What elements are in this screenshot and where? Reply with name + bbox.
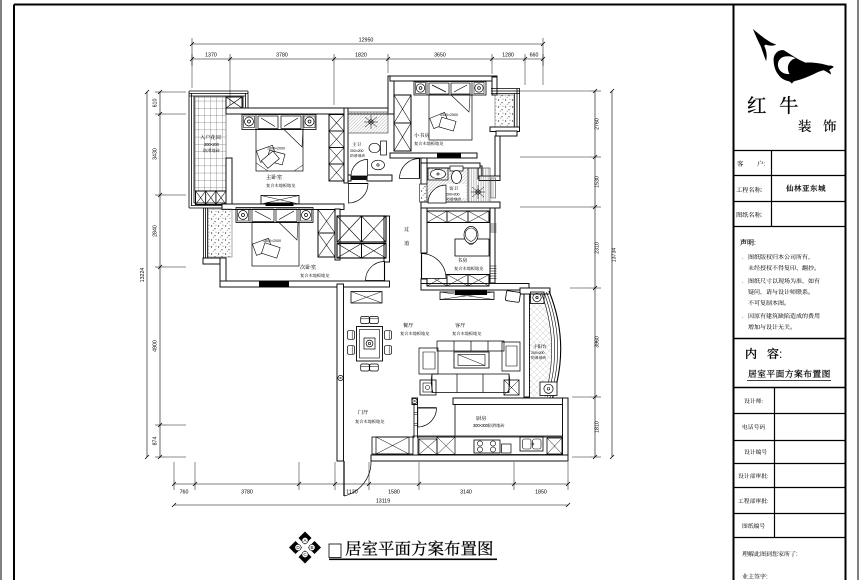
svg-text:3140: 3140 <box>460 490 472 496</box>
svg-text::: : <box>764 161 766 168</box>
svg-text:3430: 3430 <box>153 148 159 160</box>
svg-text:B: B <box>310 545 313 550</box>
svg-text:1580: 1580 <box>388 490 400 496</box>
svg-text:0: 0 <box>542 351 544 355</box>
svg-text:2760: 2760 <box>595 118 601 130</box>
svg-text:3650: 3650 <box>434 53 446 59</box>
svg-text:0: 0 <box>457 193 459 197</box>
svg-text::: : <box>761 212 763 219</box>
svg-text:660: 660 <box>530 53 539 59</box>
svg-text::: : <box>754 240 756 247</box>
svg-text:610: 610 <box>153 99 159 108</box>
svg-text:1850: 1850 <box>535 490 547 496</box>
svg-text:.: . <box>742 255 743 261</box>
svg-text:3780: 3780 <box>241 490 253 496</box>
svg-text:13224: 13224 <box>140 268 146 283</box>
svg-text:2310: 2310 <box>595 242 601 254</box>
svg-text:12950: 12950 <box>359 38 374 44</box>
svg-text:0: 0 <box>361 149 363 153</box>
svg-text:1800×2000: 1800×2000 <box>263 239 281 243</box>
svg-text:5300×2500: 5300×2500 <box>440 113 458 117</box>
svg-text:13119: 13119 <box>376 499 390 505</box>
svg-text:1800×2000: 1800×2000 <box>267 147 285 151</box>
svg-text:874: 874 <box>153 437 159 446</box>
svg-text:4900: 4900 <box>153 340 159 352</box>
svg-text:1280: 1280 <box>502 53 514 59</box>
svg-text:1820: 1820 <box>355 53 367 59</box>
svg-text:3780: 3780 <box>276 53 288 59</box>
svg-text::: : <box>761 187 763 194</box>
svg-text:1810: 1810 <box>595 421 601 433</box>
svg-text:760: 760 <box>180 490 189 496</box>
svg-text:1530: 1530 <box>595 176 601 188</box>
svg-text:.: . <box>742 314 743 320</box>
svg-text:2840: 2840 <box>153 225 159 237</box>
svg-text::: : <box>779 347 782 361</box>
svg-text:13734: 13734 <box>612 248 618 263</box>
svg-text:1370: 1370 <box>205 53 217 59</box>
svg-text:3960: 3960 <box>595 336 601 348</box>
svg-text:1130: 1130 <box>346 490 357 496</box>
svg-text:.: . <box>742 279 743 285</box>
